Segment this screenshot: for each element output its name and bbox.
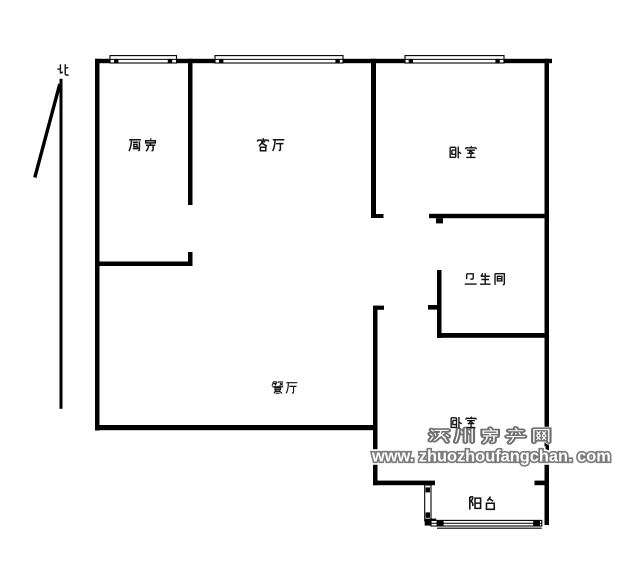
svg-text:www. zhuozhoufangchan. com: www. zhuozhoufangchan. com xyxy=(371,448,611,466)
